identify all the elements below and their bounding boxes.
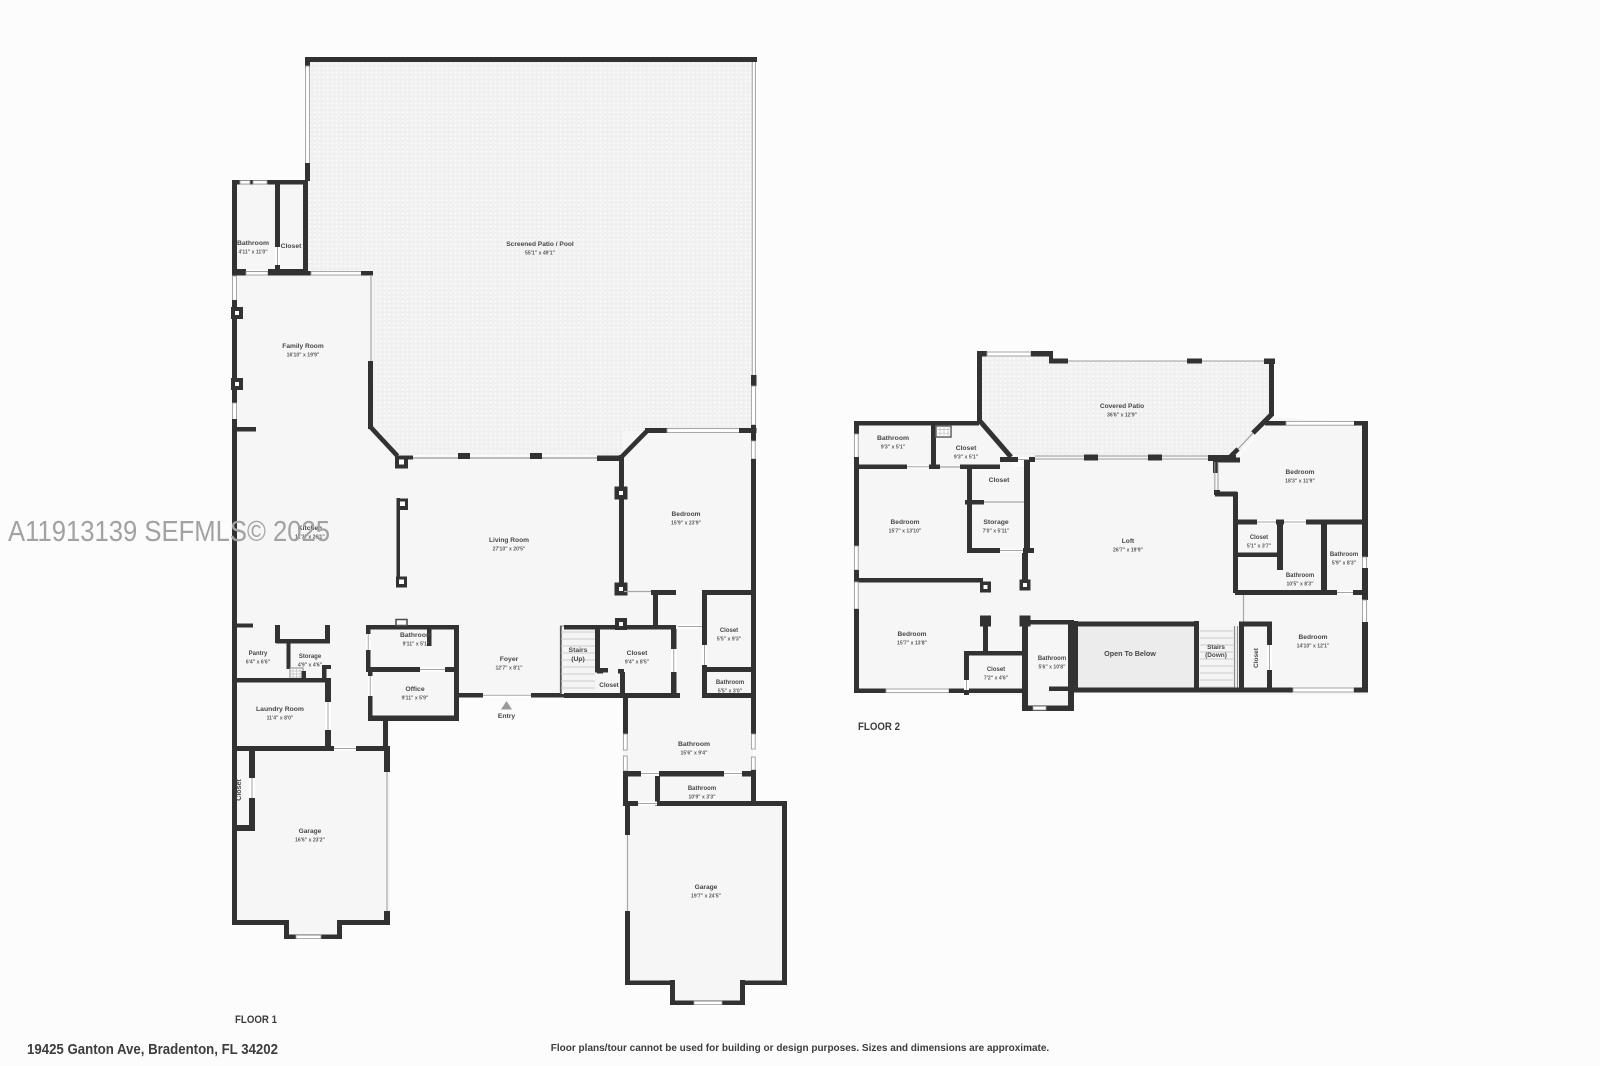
svg-text:Bathroom: Bathroom [716, 680, 744, 686]
svg-text:4'9" x 4'6": 4'9" x 4'6" [298, 663, 323, 669]
svg-text:A11913139 SEFMLS© 2025: A11913139 SEFMLS© 2025 [8, 516, 330, 548]
svg-text:7'0" x 5'11": 7'0" x 5'11" [983, 529, 1010, 535]
svg-text:Garage: Garage [695, 884, 718, 891]
svg-text:5'9" x 8'3": 5'9" x 8'3" [1332, 561, 1357, 567]
svg-text:5'5" x 3'0": 5'5" x 3'0" [718, 689, 743, 695]
svg-text:Closet: Closet [989, 477, 1011, 484]
svg-text:Bathroom: Bathroom [688, 786, 716, 792]
svg-text:4'11" x 11'0": 4'11" x 11'0" [238, 250, 268, 256]
svg-text:19425 Ganton Ave, Bradenton, F: 19425 Ganton Ave, Bradenton, FL 34202 [27, 1041, 278, 1058]
svg-text:14'10" x 12'1": 14'10" x 12'1" [1297, 644, 1330, 650]
svg-text:18'3" x 11'9": 18'3" x 11'9" [1285, 479, 1315, 485]
svg-text:6'4" x 6'6": 6'4" x 6'6" [246, 660, 271, 666]
svg-text:Closet: Closet [1253, 647, 1260, 668]
svg-text:FLOOR 2: FLOOR 2 [858, 721, 900, 733]
svg-text:27'10" x 20'5": 27'10" x 20'5" [493, 547, 526, 553]
svg-text:Office: Office [405, 686, 424, 693]
svg-text:Closet: Closet [956, 445, 978, 452]
svg-text:Closet: Closet [627, 650, 649, 657]
svg-text:Garage: Garage [299, 828, 322, 835]
svg-text:Storage: Storage [299, 654, 322, 660]
svg-text:19'7" x 24'5": 19'7" x 24'5" [691, 894, 721, 900]
svg-text:Closet: Closet [281, 243, 303, 250]
svg-text:Closet: Closet [720, 628, 738, 634]
svg-text:10'9" x 3'3": 10'9" x 3'3" [688, 795, 716, 801]
svg-text:Floor plans/tour cannot be use: Floor plans/tour cannot be used for buil… [551, 1043, 1050, 1054]
svg-text:11'4" x 8'0": 11'4" x 8'0" [267, 716, 294, 722]
svg-text:Bedroom: Bedroom [898, 631, 927, 638]
svg-text:Loft: Loft [1122, 538, 1135, 545]
svg-text:Foyer: Foyer [500, 656, 519, 663]
svg-text:Open To Below: Open To Below [1104, 649, 1156, 658]
svg-text:9'4" x 8'5": 9'4" x 8'5" [625, 660, 650, 666]
svg-text:Bedroom: Bedroom [1286, 469, 1315, 476]
svg-text:Storage: Storage [983, 519, 1009, 526]
svg-text:Bathroom: Bathroom [237, 240, 269, 247]
svg-text:55'1" x 49'1": 55'1" x 49'1" [525, 251, 555, 257]
svg-text:36'6" x 12'9": 36'6" x 12'9" [1107, 413, 1137, 419]
svg-text:26'7" x 19'9": 26'7" x 19'9" [1113, 548, 1143, 554]
svg-text:16'6" x 23'2": 16'6" x 23'2" [295, 838, 325, 844]
svg-text:15'7" x 13'8": 15'7" x 13'8" [897, 641, 927, 647]
svg-text:FLOOR 1: FLOOR 1 [235, 1014, 277, 1026]
svg-text:7'2" x 4'6": 7'2" x 4'6" [984, 676, 1009, 682]
svg-text:Bathroom: Bathroom [400, 632, 432, 639]
svg-text:10'5" x 8'3": 10'5" x 8'3" [1286, 582, 1314, 588]
svg-text:Closet: Closet [1250, 535, 1268, 541]
svg-text:Bedroom: Bedroom [891, 519, 920, 526]
svg-text:Living Room: Living Room [489, 537, 529, 544]
svg-text:Entry: Entry [498, 713, 516, 720]
svg-text:Bathroom: Bathroom [877, 435, 909, 442]
svg-text:Stairs: Stairs [1207, 644, 1225, 651]
svg-text:5'1" x 3'7": 5'1" x 3'7" [1247, 544, 1272, 550]
svg-text:5'5" x 9'3": 5'5" x 9'3" [717, 637, 742, 643]
svg-text:Screened Patio / Pool: Screened Patio / Pool [506, 241, 574, 248]
svg-text:Closet: Closet [236, 779, 243, 801]
svg-text:Stairs: Stairs [569, 647, 588, 654]
svg-text:9'11" x 5'1": 9'11" x 5'1" [403, 642, 430, 648]
svg-text:9'3" x 5'1": 9'3" x 5'1" [881, 445, 906, 451]
svg-text:16'10" x 19'9": 16'10" x 19'9" [287, 353, 320, 359]
svg-text:9'3" x 5'1": 9'3" x 5'1" [954, 455, 979, 461]
svg-text:Laundry Room: Laundry Room [256, 706, 304, 713]
svg-text:(Up): (Up) [571, 656, 585, 663]
svg-text:(Down): (Down) [1205, 652, 1227, 659]
svg-text:15'7" x 13'10": 15'7" x 13'10" [889, 529, 922, 535]
svg-text:Bathroom: Bathroom [1286, 573, 1314, 579]
svg-text:Bedroom: Bedroom [672, 511, 701, 518]
svg-text:Bedroom: Bedroom [1299, 634, 1328, 641]
svg-text:15'6" x 9'4": 15'6" x 9'4" [680, 751, 708, 757]
svg-text:15'9" x 23'9": 15'9" x 23'9" [671, 521, 701, 527]
svg-text:Bathroom: Bathroom [1330, 552, 1358, 558]
svg-text:9'11" x 5'9": 9'11" x 5'9" [402, 696, 429, 702]
svg-text:Closet: Closet [987, 667, 1005, 673]
svg-text:Family Room: Family Room [282, 343, 324, 350]
svg-text:Closet: Closet [599, 682, 619, 689]
svg-text:Bathroom: Bathroom [678, 741, 710, 748]
svg-text:Pantry: Pantry [249, 651, 268, 657]
svg-text:5'6" x 10'8": 5'6" x 10'8" [1038, 665, 1066, 671]
svg-text:Bathroom: Bathroom [1038, 656, 1066, 662]
svg-text:Covered Patio: Covered Patio [1100, 403, 1144, 410]
svg-text:12'7" x 8'1": 12'7" x 8'1" [495, 666, 523, 672]
